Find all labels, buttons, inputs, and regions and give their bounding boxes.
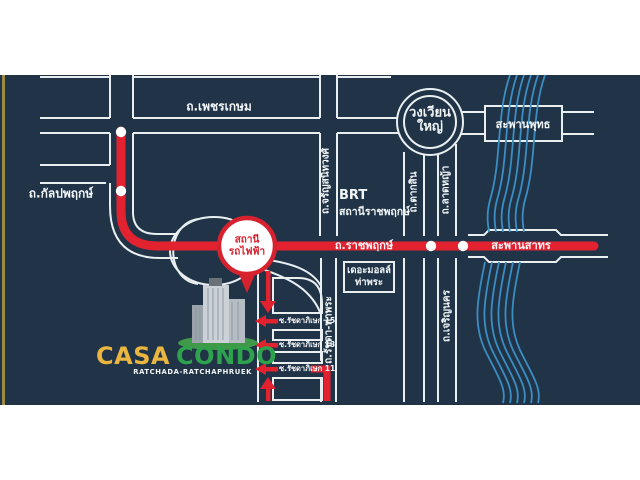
brand-logo: CASACONDO [96, 342, 252, 370]
building-penthouse [209, 278, 222, 286]
building-main-tower [203, 285, 229, 343]
label-soi-ratchadaphisek-11: ซ.รัชดาภิเษก 11 [279, 363, 335, 375]
road-kalpaphruek-lines [40, 165, 110, 183]
station-dot [458, 241, 468, 251]
station-dot [116, 127, 126, 137]
map-flyer: ถ.เพชรเกษม ถ.กัลปพฤกษ์ ถ.จรัญสนิทวงศ์ ถ.… [0, 0, 640, 480]
label-road-latya: ถ.ลาดหญ้า [441, 166, 452, 215]
label-road-taksin: ถ.ตากสิน [409, 172, 420, 213]
label-train-station: สถานี รถไฟฟ้า [229, 235, 265, 258]
label-road-ratchaphruek: ถ.ราชพฤกษ์ [335, 240, 393, 252]
label-road-ratchada-thaphra: ถ.รัชดา-ท่าพระ [324, 296, 335, 364]
label-road-charoen-nakhon: ถ.เจริญนคร [442, 290, 453, 342]
building-right-wing [228, 299, 245, 343]
building-left-wing [192, 305, 204, 343]
label-saphan-sathorn: สะพานสาทร [491, 240, 551, 252]
label-brt-station: BRT สถานีราชพฤกษ์ [339, 188, 410, 220]
station-dot [426, 241, 436, 251]
interchange-left-arc [173, 219, 198, 284]
label-soi-ratchadaphisek-15: ซ.รัชดาภิเษก 15 [279, 315, 335, 327]
river-lines-upper [488, 75, 545, 232]
brand-name-condo: CONDO [176, 342, 277, 370]
label-wongwian-yai: วงเวียน ใหญ่ [409, 107, 451, 136]
label-saphan-phut: สะพานพุทธ [496, 119, 551, 131]
label-road-kalpaphruek: ถ.กัลปพฤกษ์ [29, 187, 93, 200]
label-road-phetkasem: ถ.เพชรเกษม [186, 100, 252, 113]
label-road-charansanitwong: ถ.จรัญสนิทวงศ์ [321, 148, 332, 214]
brand-name-casa: CASA [96, 342, 170, 370]
label-soi-ratchadaphisek-13: ซ.รัชดาภิเษก 13 [279, 339, 335, 351]
label-the-mall: เดอะมอลล์ ท่าพระ [347, 265, 391, 289]
river-lines-lower [477, 262, 538, 403]
brand-subtitle: RATCHADA-RATCHAPHRUEK [96, 368, 252, 376]
station-dot [116, 186, 126, 196]
